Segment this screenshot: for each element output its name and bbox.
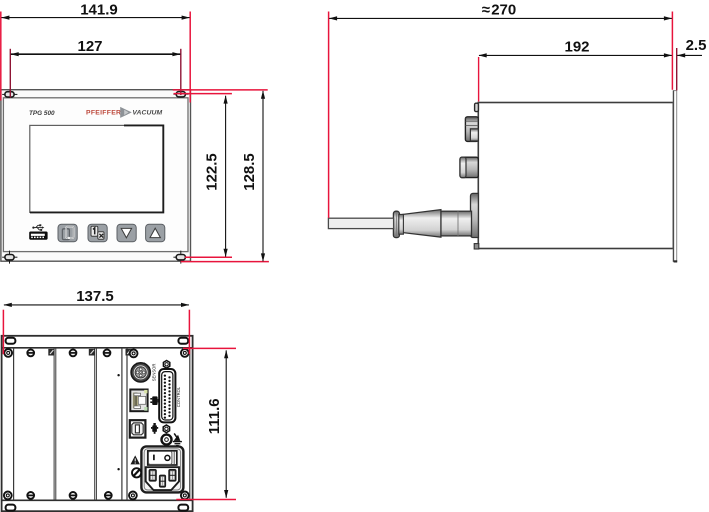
svg-text:128.5: 128.5 (241, 153, 258, 191)
svg-text:SENSOR: SENSOR (152, 364, 157, 382)
svg-text:VACUUM: VACUUM (132, 110, 162, 117)
svg-text:137.5: 137.5 (76, 288, 114, 305)
svg-text:CONTROL: CONTROL (176, 386, 181, 407)
svg-text:122.5: 122.5 (204, 153, 221, 191)
svg-text:192: 192 (564, 38, 589, 55)
svg-text:141.9: 141.9 (80, 1, 118, 18)
svg-text:2.5: 2.5 (686, 37, 707, 54)
svg-text:127: 127 (77, 38, 102, 55)
svg-text:111.6: 111.6 (206, 398, 223, 434)
svg-text:PFEIFFER: PFEIFFER (86, 110, 121, 117)
svg-text:TPG 500: TPG 500 (29, 110, 55, 117)
svg-text:≈ 270: ≈ 270 (482, 2, 517, 19)
